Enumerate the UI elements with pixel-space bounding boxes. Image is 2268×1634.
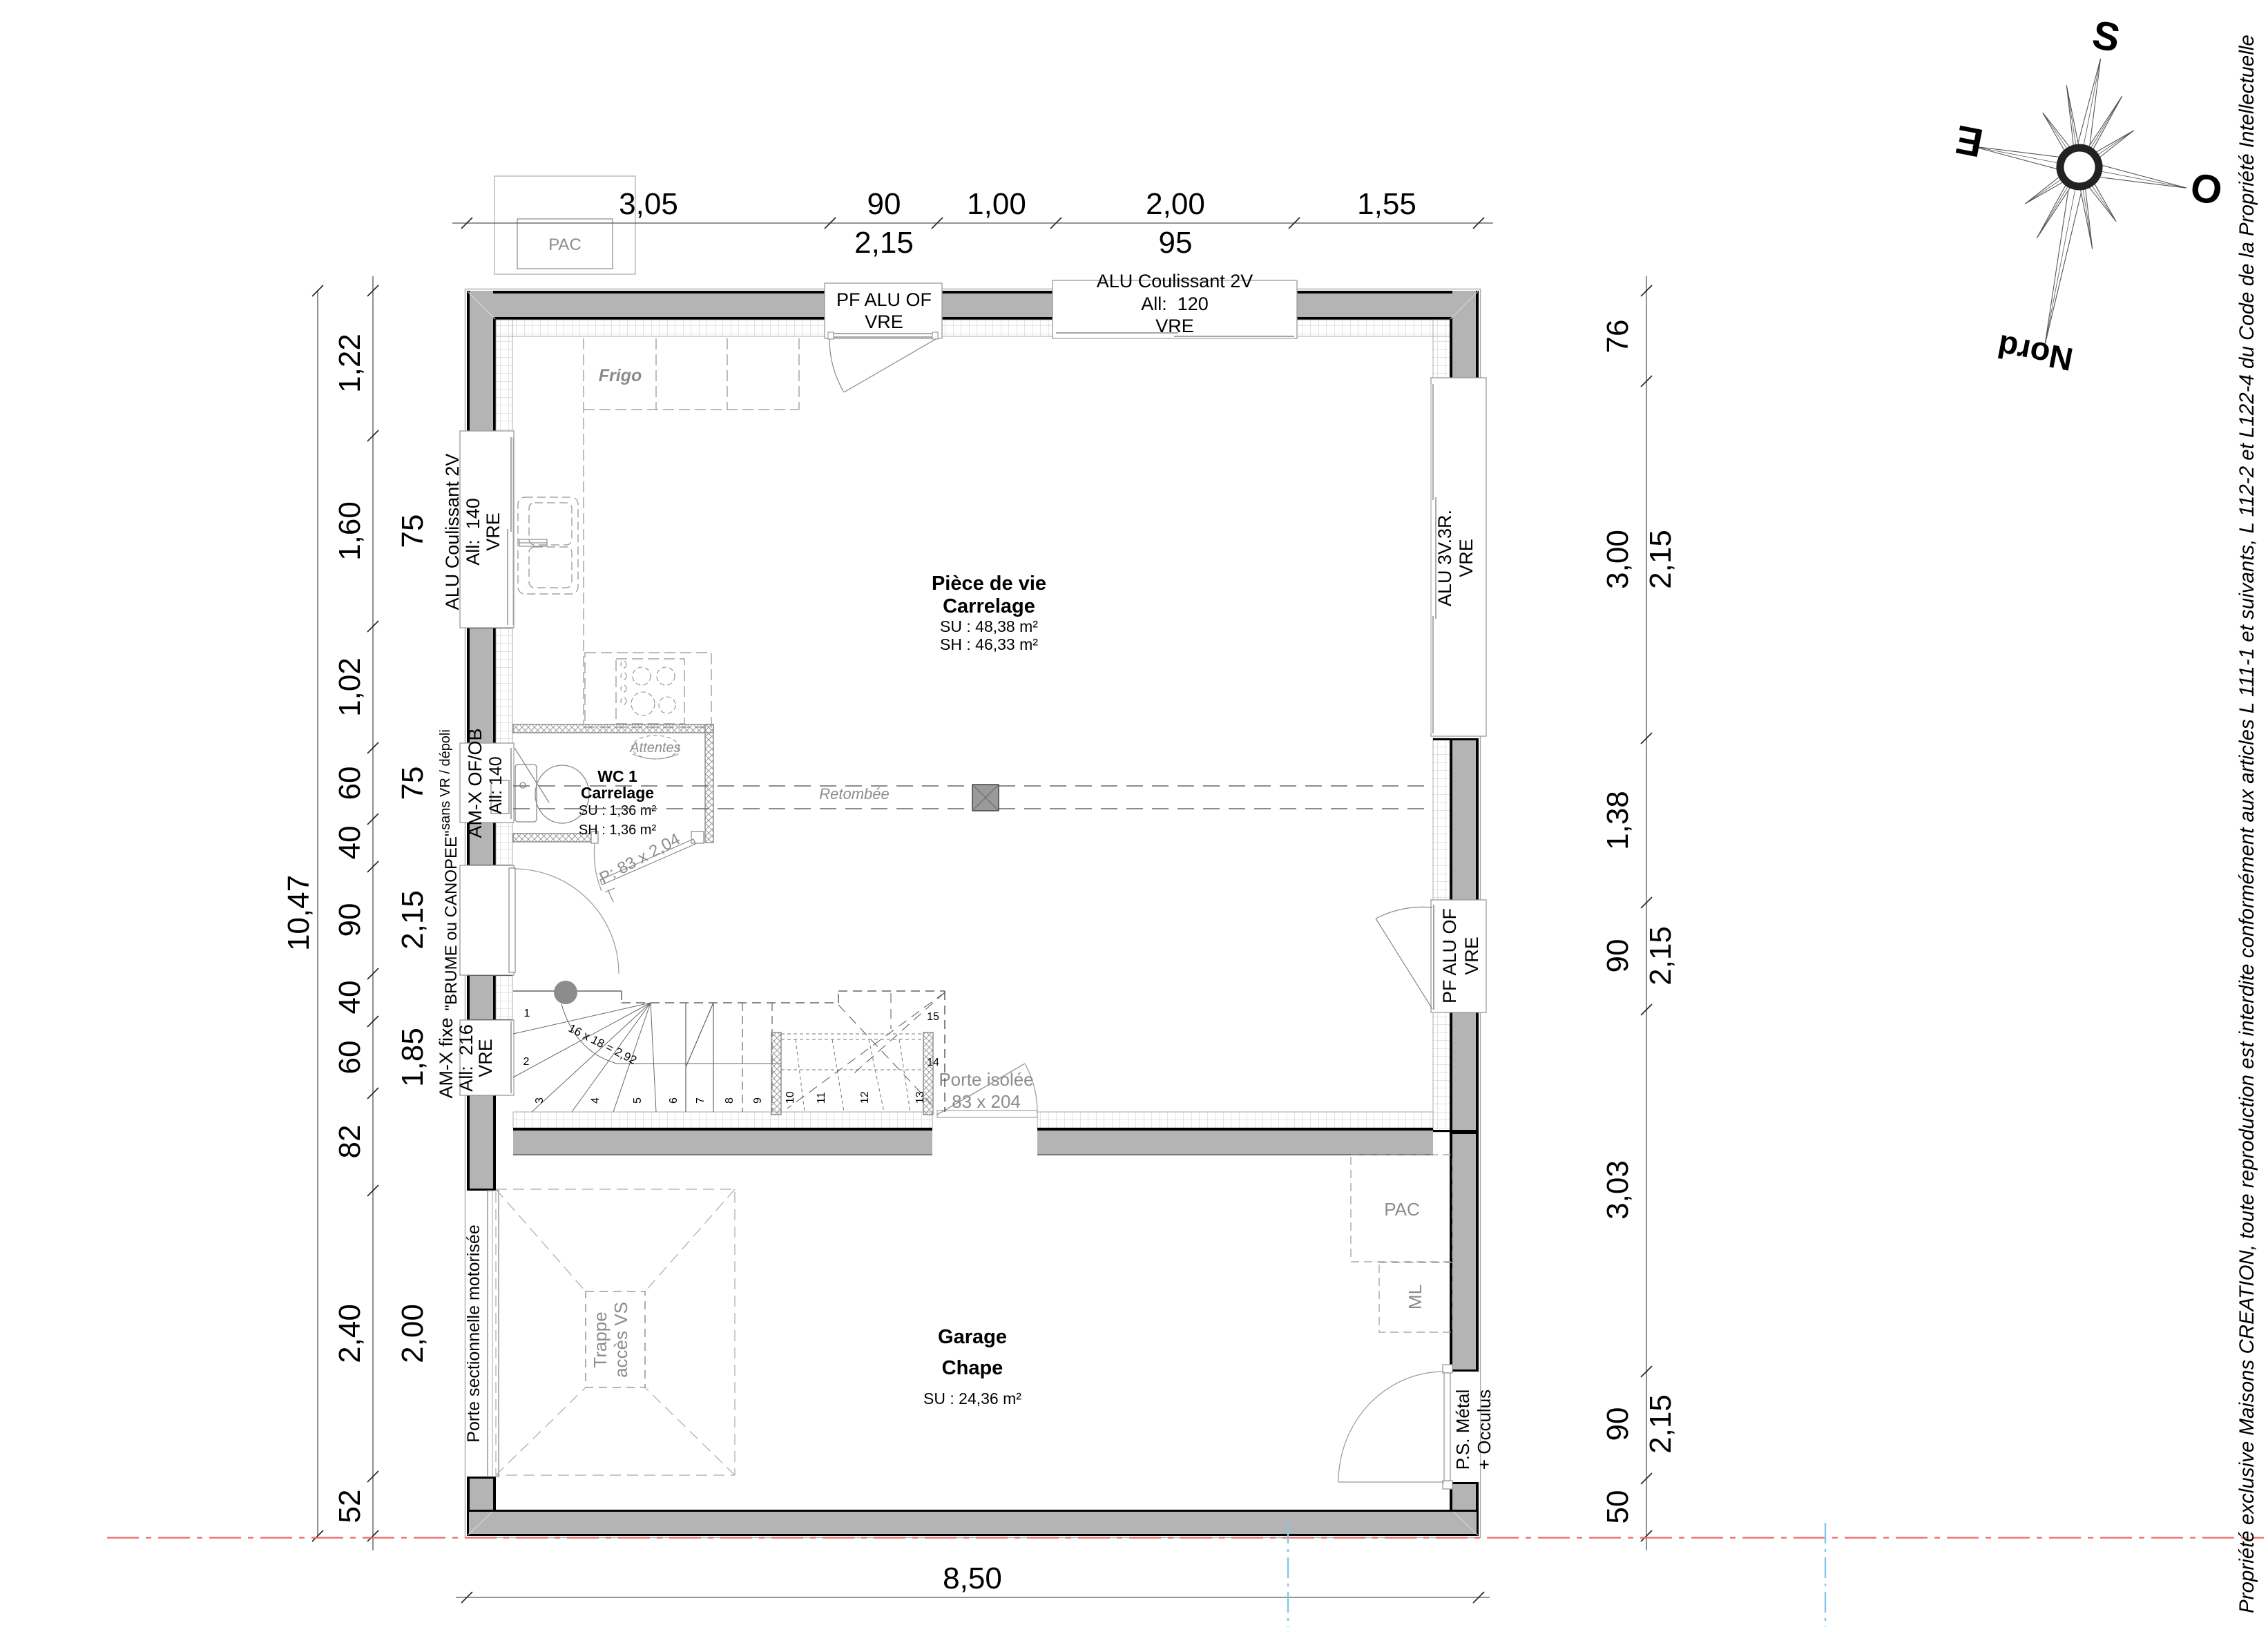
svg-text:2,00: 2,00 bbox=[1146, 187, 1205, 221]
svg-text:1,38: 1,38 bbox=[1601, 791, 1635, 850]
svg-text:90: 90 bbox=[1601, 1407, 1635, 1441]
svg-text:accès VS: accès VS bbox=[611, 1302, 631, 1378]
svg-text:2,00: 2,00 bbox=[396, 1304, 430, 1363]
svg-text:Attentes: Attentes bbox=[629, 740, 680, 756]
svg-text:40: 40 bbox=[333, 826, 367, 860]
svg-text:PF ALU OF: PF ALU OF bbox=[1439, 908, 1460, 1003]
svg-text:Pièce de vie: Pièce de vie bbox=[932, 573, 1046, 595]
svg-text:3,05: 3,05 bbox=[619, 187, 678, 221]
svg-text:2,40: 2,40 bbox=[333, 1304, 367, 1363]
svg-text:Trappe: Trappe bbox=[590, 1311, 611, 1367]
svg-text:1,22: 1,22 bbox=[333, 334, 367, 393]
svg-text:SU : 24,36 m²: SU : 24,36 m² bbox=[923, 1390, 1021, 1407]
svg-text:SU : 1,36 m²: SU : 1,36 m² bbox=[579, 803, 657, 818]
svg-text:40: 40 bbox=[333, 981, 367, 1015]
svg-text:2,15: 2,15 bbox=[396, 890, 430, 950]
svg-text:VRE: VRE bbox=[865, 311, 903, 332]
svg-text:1,00: 1,00 bbox=[967, 187, 1026, 221]
svg-text:90: 90 bbox=[867, 187, 901, 221]
svg-text:2,15: 2,15 bbox=[854, 226, 914, 260]
svg-text:VRE: VRE bbox=[1155, 316, 1194, 336]
svg-text:5: 5 bbox=[632, 1097, 644, 1104]
svg-text:ALU Coulissant 2V: ALU Coulissant 2V bbox=[1097, 271, 1253, 291]
svg-text:ALU Coulissant 2V: ALU Coulissant 2V bbox=[442, 454, 463, 611]
svg-text:1,55: 1,55 bbox=[1357, 187, 1416, 221]
svg-text:VRE: VRE bbox=[1456, 539, 1477, 577]
svg-text:"BRUME ou CANOPEE": "BRUME ou CANOPEE" bbox=[442, 830, 461, 1010]
svg-text:SH : 46,33 m²: SH : 46,33 m² bbox=[940, 635, 1038, 653]
svg-text:50: 50 bbox=[1601, 1490, 1635, 1524]
svg-text:90: 90 bbox=[333, 903, 367, 937]
svg-text:10,47: 10,47 bbox=[282, 875, 316, 951]
svg-text:12: 12 bbox=[859, 1091, 871, 1104]
svg-text:Carrelage: Carrelage bbox=[581, 784, 654, 802]
svg-text:SU : 48,38 m²: SU : 48,38 m² bbox=[940, 617, 1038, 635]
svg-text:10: 10 bbox=[785, 1091, 796, 1104]
svg-text:+ Occulus: + Occulus bbox=[1474, 1390, 1495, 1470]
svg-text:82: 82 bbox=[333, 1125, 367, 1159]
svg-text:2,15: 2,15 bbox=[1644, 1394, 1678, 1454]
svg-text:90: 90 bbox=[1601, 939, 1635, 973]
svg-text:11: 11 bbox=[816, 1092, 827, 1104]
svg-text:All: 216: All: 216 bbox=[456, 1024, 477, 1092]
svg-text:AM-X OF/OB: AM-X OF/OB bbox=[465, 728, 486, 838]
svg-text:60: 60 bbox=[333, 1041, 367, 1075]
svg-text:Porte isolée: Porte isolée bbox=[939, 1069, 1033, 1090]
svg-text:7: 7 bbox=[695, 1097, 707, 1104]
svg-text:1,02: 1,02 bbox=[333, 657, 367, 717]
svg-text:83 x 204: 83 x 204 bbox=[952, 1091, 1021, 1112]
svg-text:AM-X fixe: AM-X fixe bbox=[436, 1017, 457, 1098]
svg-text:All: 140: All: 140 bbox=[486, 756, 506, 814]
svg-text:2,15: 2,15 bbox=[1644, 530, 1678, 589]
svg-text:3: 3 bbox=[534, 1097, 546, 1104]
svg-text:PAC: PAC bbox=[548, 236, 582, 254]
svg-text:8,50: 8,50 bbox=[943, 1561, 1002, 1595]
svg-text:13: 13 bbox=[914, 1091, 926, 1104]
svg-text:P.S. Métal: P.S. Métal bbox=[1452, 1390, 1473, 1470]
svg-text:1,85: 1,85 bbox=[396, 1028, 430, 1087]
svg-text:SH : 1,36 m²: SH : 1,36 m² bbox=[579, 823, 657, 838]
svg-text:3,03: 3,03 bbox=[1601, 1160, 1635, 1220]
svg-text:VRE: VRE bbox=[1461, 936, 1482, 975]
svg-text:2,15: 2,15 bbox=[1644, 926, 1678, 986]
svg-text:Retombée: Retombée bbox=[819, 785, 890, 802]
svg-text:VRE: VRE bbox=[475, 1039, 496, 1077]
svg-text:60: 60 bbox=[333, 767, 367, 800]
svg-text:All: 120: All: 120 bbox=[1141, 294, 1209, 314]
svg-text:52: 52 bbox=[333, 1490, 367, 1524]
svg-text:15: 15 bbox=[927, 1011, 939, 1023]
svg-text:Frigo: Frigo bbox=[599, 366, 642, 385]
svg-text:76: 76 bbox=[1601, 320, 1635, 354]
svg-text:All: 140: All: 140 bbox=[463, 498, 483, 566]
svg-text:6: 6 bbox=[668, 1097, 680, 1104]
svg-text:Porte sectionnelle motorisée: Porte sectionnelle motorisée bbox=[464, 1224, 483, 1442]
svg-text:Chape: Chape bbox=[942, 1357, 1003, 1379]
svg-text:14: 14 bbox=[927, 1057, 939, 1068]
svg-text:ALU 3V.3R.: ALU 3V.3R. bbox=[1434, 510, 1455, 606]
svg-text:Propriété exclusive Maisons CR: Propriété exclusive Maisons CREATION, to… bbox=[2236, 35, 2258, 1613]
svg-text:75: 75 bbox=[396, 767, 430, 800]
svg-text:95: 95 bbox=[1159, 226, 1193, 260]
svg-text:9: 9 bbox=[752, 1097, 764, 1104]
svg-text:Carrelage: Carrelage bbox=[943, 595, 1035, 617]
svg-text:1: 1 bbox=[524, 1008, 530, 1019]
svg-text:WC 1: WC 1 bbox=[597, 767, 637, 785]
svg-text:2: 2 bbox=[523, 1056, 530, 1068]
svg-text:PAC: PAC bbox=[1384, 1199, 1420, 1220]
svg-text:PF ALU OF: PF ALU OF bbox=[836, 289, 932, 310]
svg-text:VRE: VRE bbox=[483, 512, 503, 551]
svg-text:3,00: 3,00 bbox=[1601, 530, 1635, 589]
svg-text:Garage: Garage bbox=[938, 1326, 1007, 1348]
svg-text:8: 8 bbox=[724, 1097, 736, 1104]
svg-text:1,60: 1,60 bbox=[333, 501, 367, 561]
svg-text:ML: ML bbox=[1405, 1285, 1425, 1309]
svg-text:75: 75 bbox=[396, 515, 430, 548]
svg-text:4: 4 bbox=[590, 1097, 602, 1104]
svg-text:sans VR / dépoli: sans VR / dépoli bbox=[438, 729, 453, 830]
